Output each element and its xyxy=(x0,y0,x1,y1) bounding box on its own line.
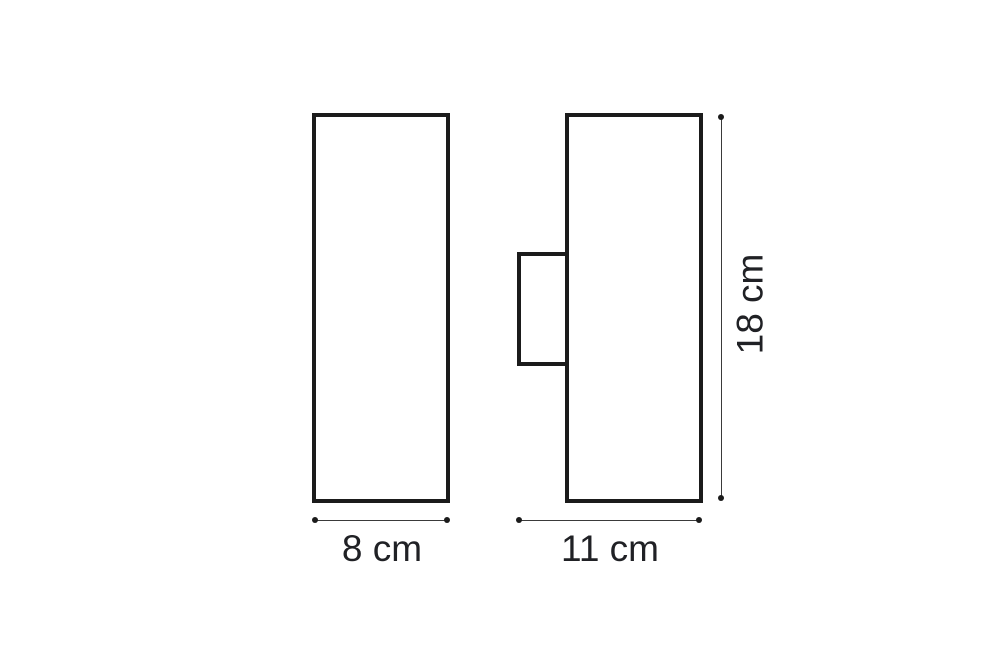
dimension-diagram: 8 cm 11 cm 18 cm xyxy=(0,0,1001,654)
side-width-dimension-line xyxy=(517,520,701,521)
mount-bracket-outline xyxy=(517,252,567,366)
height-dimension-line xyxy=(721,115,722,500)
dimension-endpoint-dot xyxy=(444,517,450,523)
dimension-endpoint-dot xyxy=(718,114,724,120)
side-width-label: 11 cm xyxy=(561,530,659,567)
dimension-endpoint-dot xyxy=(312,517,318,523)
front-width-dimension-line xyxy=(313,520,449,521)
dimension-endpoint-dot xyxy=(696,517,702,523)
dimension-endpoint-dot xyxy=(516,517,522,523)
dimension-endpoint-dot xyxy=(718,495,724,501)
front-view-outline xyxy=(312,113,450,503)
front-width-label: 8 cm xyxy=(342,530,422,567)
side-view-outline xyxy=(565,113,703,503)
height-label: 18 cm xyxy=(732,254,769,355)
